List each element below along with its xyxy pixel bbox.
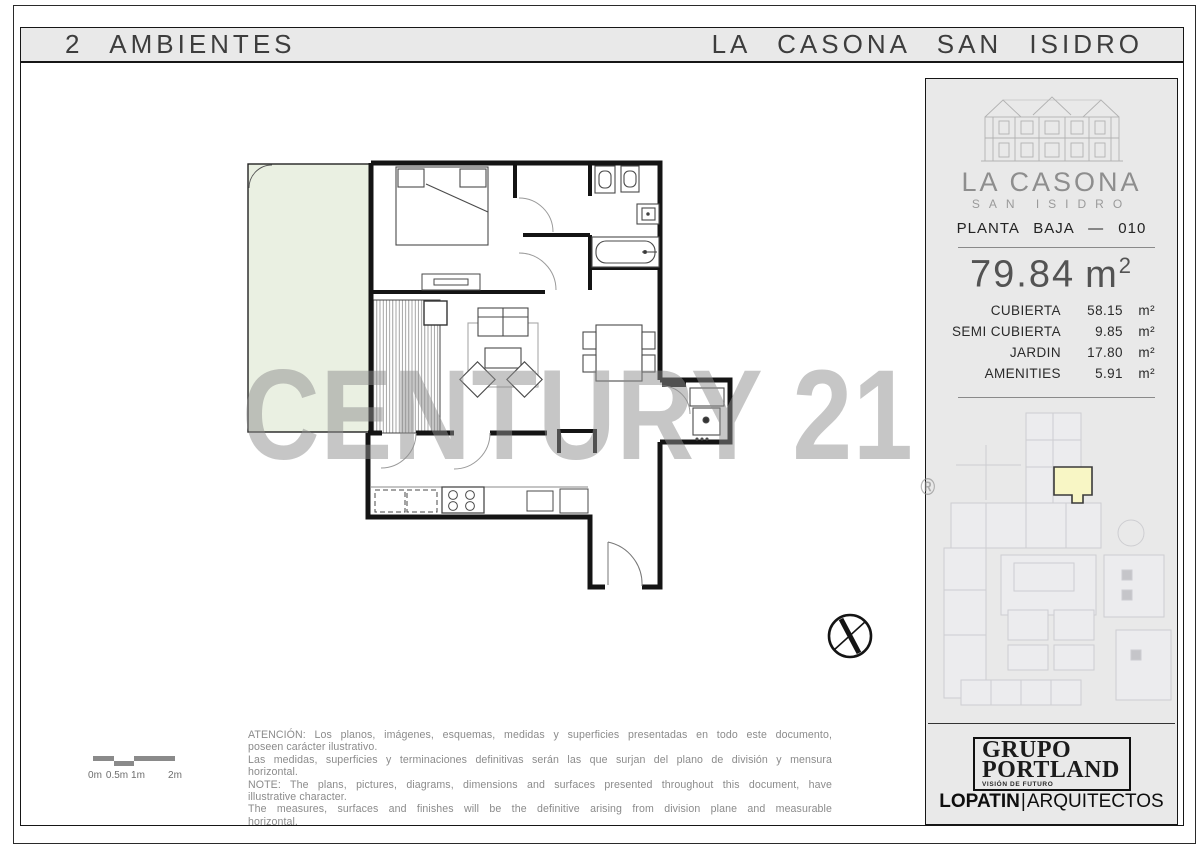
area-breakdown: CUBIERTA 58.15 m² SEMI CUBIERTA 9.85 m² … [952,303,1152,381]
scale-label: 1m [131,770,145,781]
brand-subname: SAN ISIDRO [926,197,1177,211]
developer-logo: GRUPO PORTLAND VISIÓN DE FUTURO [973,737,1131,791]
disclaimer-line: poseen carácter ilustrativo. [248,741,832,753]
dresser [422,274,480,290]
area-unit: m² [1131,345,1155,360]
floorplan-sheet: { "header": { "left": "2 AMBIENTES", "ri… [0,0,1200,848]
scale-segment [114,761,135,766]
scale-label: 0m [88,770,102,781]
scale-segment [134,756,175,761]
bathroom-fixtures [592,166,659,267]
garden-area [248,164,370,432]
plan-level-label: PLANTA BAJA — 010 [926,220,1177,237]
floor-plan [238,150,898,680]
laundry [690,388,724,440]
area-unit: m² [1131,324,1155,339]
kitchen [371,487,588,513]
disclaimer-line: NOTE: The plans, pictures, diagrams, dim… [248,779,832,791]
legal-disclaimer: ATENCIÓN: Los planos, imágenes, esquemas… [248,729,832,828]
dining-set [583,325,655,381]
laundry-counter [690,388,724,406]
developer-name-line2: PORTLAND [982,760,1122,780]
kitchen-cabinet [407,490,437,512]
disclaimer-line: ATENCIÓN: Los planos, imágenes, esquemas… [248,729,832,741]
total-area: 79.84m2 [926,253,1177,297]
kitchen-sink [527,491,553,511]
area-label: JARDIN [952,345,1061,360]
scale-label: 0.5m [106,770,128,781]
area-label: SEMI CUBIERTA [952,324,1061,339]
divider [958,397,1155,398]
site-plan-map [926,405,1179,723]
brand-name: LA CASONA [926,167,1177,198]
kitchen-cabinet [375,490,405,512]
disclaimer-line: illustrative character. [248,791,832,803]
info-panel: LA CASONA SAN ISIDRO PLANTA BAJA — 010 7… [925,78,1178,825]
deck-area [372,300,447,433]
disclaimer-line: horizontal. [248,816,832,828]
architect-logo: LOPATIN|ARQUITECTOS [926,791,1177,813]
disclaimer-line: The measures, surfaces and finishes will… [248,803,832,815]
dining-table [596,325,642,381]
area-value: 58.15 [1069,303,1123,318]
area-value: 17.80 [1069,345,1123,360]
area-label: CUBIERTA [952,303,1061,318]
north-compass-icon [829,615,871,657]
living-room-furniture [460,308,542,397]
kitchen-counter [560,489,588,513]
bed [396,167,488,245]
scale-bar: 0m 0.5m 1m 2m [93,756,175,786]
title-bar: 2 AMBIENTES LA CASONA SAN ISIDRO [20,27,1184,62]
divider [958,247,1155,248]
coffee-table [485,348,521,368]
disclaimer-line: horizontal. [248,766,832,778]
area-unit: m² [1131,303,1155,318]
area-value: 5.91 [1069,366,1123,381]
scale-label: 2m [168,770,182,781]
area-value: 9.85 [1069,324,1123,339]
floor-plan-svg [238,150,898,680]
divider [928,723,1175,724]
area-unit: m² [1131,366,1155,381]
disclaimer-line: Las medidas, superficies y terminaciones… [248,754,832,766]
project-title: LA CASONA SAN ISIDRO [712,29,1143,60]
stove [442,487,484,513]
area-label: AMENITIES [952,366,1061,381]
building-sketch [977,93,1127,165]
scale-segment [93,756,114,761]
unit-type-title: 2 AMBIENTES [65,29,296,60]
